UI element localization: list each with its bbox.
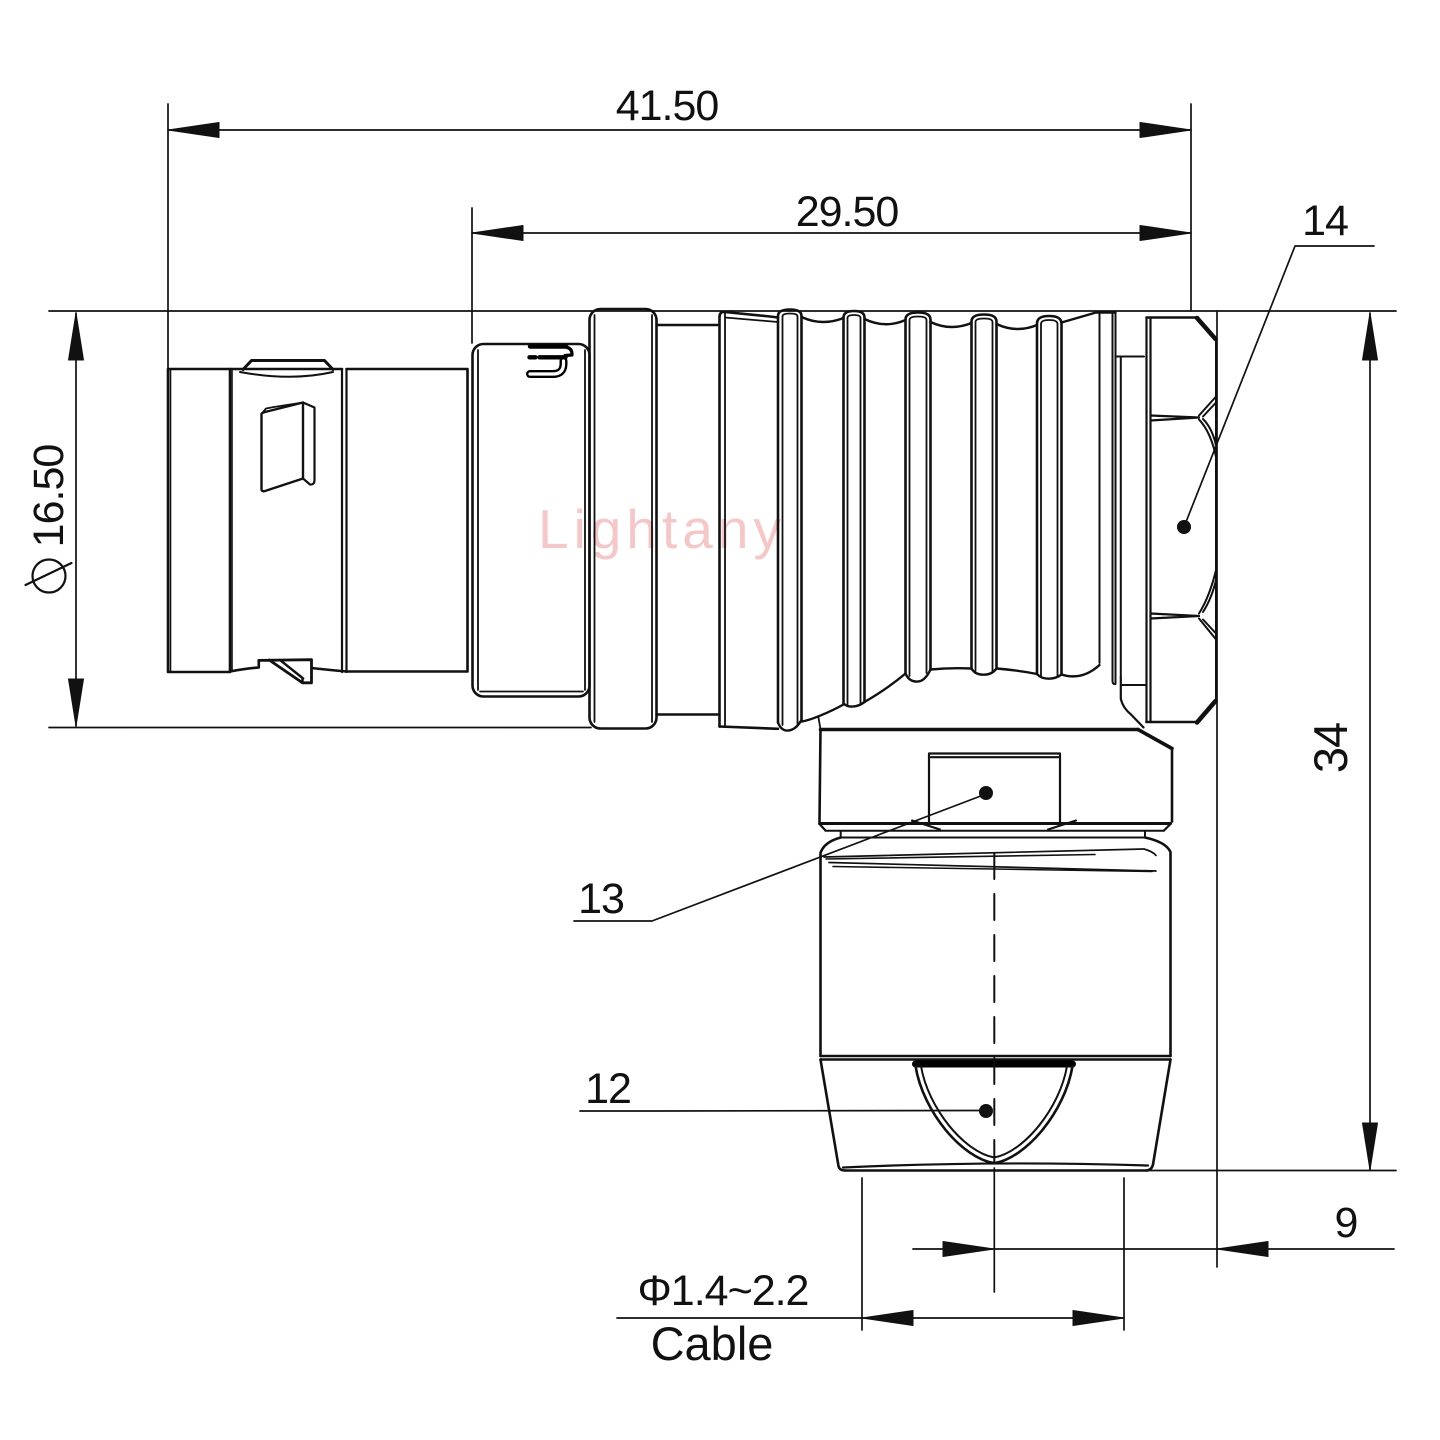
- svg-text:9: 9: [1335, 1199, 1358, 1247]
- svg-text:34: 34: [1304, 723, 1357, 773]
- svg-text:29.50: 29.50: [796, 188, 899, 236]
- svg-text:16.50: 16.50: [25, 445, 73, 548]
- svg-text:12: 12: [585, 1065, 631, 1113]
- svg-text:Φ1.4~2.2: Φ1.4~2.2: [638, 1267, 809, 1315]
- svg-text:13: 13: [578, 875, 624, 923]
- svg-text:Cable: Cable: [651, 1317, 774, 1370]
- svg-text:Lightany: Lightany: [538, 498, 786, 560]
- svg-text:14: 14: [1302, 197, 1348, 245]
- svg-text:41.50: 41.50: [616, 82, 719, 130]
